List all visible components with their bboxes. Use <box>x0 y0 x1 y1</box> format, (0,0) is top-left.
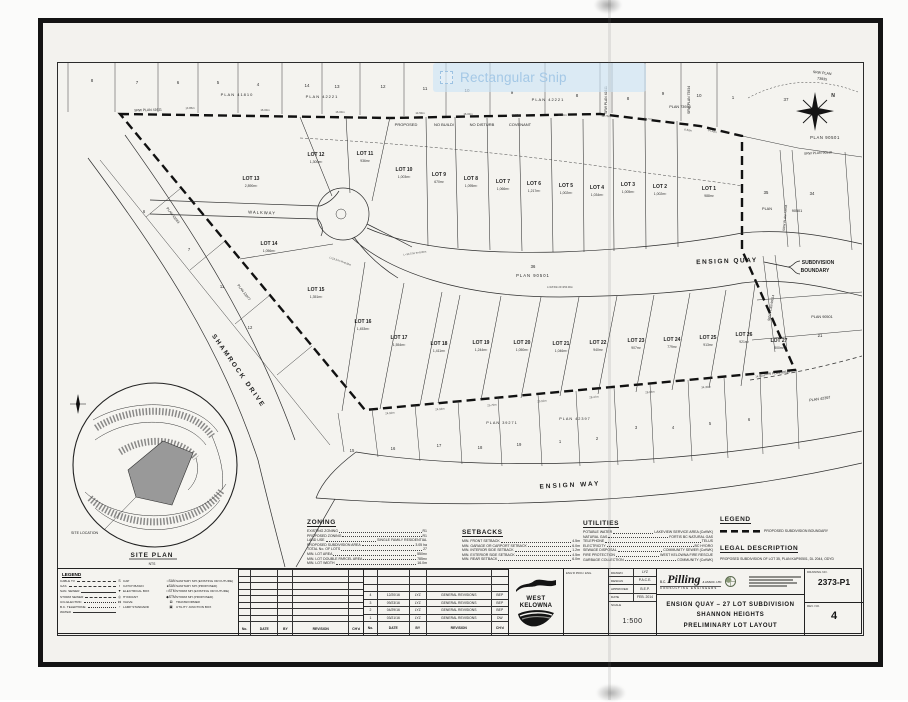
boundary-callout-leader <box>764 261 800 274</box>
plan-label: NO BUILD/ <box>434 122 455 127</box>
plan-label: LOT 12 <box>308 152 325 158</box>
legend-box-title: LEGEND <box>62 572 236 577</box>
plan-label: 13.77m <box>643 117 653 122</box>
plan-label: 10 <box>696 93 702 98</box>
plan-label: 1,095m² <box>465 184 478 188</box>
plan-label: 1,244m² <box>475 348 488 352</box>
plan-label: 16 <box>391 446 396 451</box>
plan-label: WALKWAY <box>248 210 276 216</box>
plan-label: 5 <box>217 80 220 85</box>
revision-row: 309/23/16LYZGENERAL REVISIONSBEP <box>364 599 508 606</box>
plan-label: LOT 8 <box>464 176 478 182</box>
plan-label: 8 <box>576 93 579 98</box>
plan-label: 37 <box>783 97 789 102</box>
plan-label: 24.50m <box>385 411 395 416</box>
setbacks-block: SETBACKS MIN. FRONT SETBACK4.5mMIN. GARA… <box>462 521 580 562</box>
plan-label: 17 <box>437 443 442 448</box>
firm-logo-row: B.C. Pilling & ASSOC. LTD CONSULTING ENG… <box>657 569 804 595</box>
utilities-item: GARBAGE COLLECTIONCOMMUNITY (CofWK) <box>583 558 713 563</box>
revision-row <box>364 576 508 583</box>
plan-label: LOT 26 <box>736 332 753 338</box>
scale-label: SCALE <box>609 602 633 609</box>
setbacks-title: SETBACKS <box>462 529 503 537</box>
plan-label: SUBDIVISION <box>802 260 835 266</box>
legend-linetype-row: WATER <box>60 610 116 615</box>
utilities-items: POTABLE WATERLAKEVIEW SERVICE AREA (CofW… <box>583 530 713 562</box>
plan-label: LOT 9 <box>432 172 446 178</box>
plan-label: 14 <box>304 83 310 88</box>
plan-label: 1,056m² <box>263 249 276 253</box>
firm-suffix: & ASSOC. LTD <box>703 581 722 584</box>
plan-label: 14.85m <box>185 106 195 110</box>
plan-label: 11 <box>220 284 225 289</box>
plan-label: LOT 17 <box>391 335 408 341</box>
setbacks-items: MIN. FRONT SETBACK4.5mMIN. GARAGE OR CAR… <box>462 539 580 562</box>
drawn-label: DRAWN <box>609 569 633 576</box>
zoning-block: ZONING EXISTING ZONINGR1PROPOSED ZONINGR… <box>307 511 427 566</box>
plan-label: 1,046m² <box>555 349 568 353</box>
plan-label: 921m² <box>739 340 749 344</box>
plan-label: 1,411m² <box>433 349 446 353</box>
plan-label: PLAN 90501 <box>516 273 550 278</box>
plan-label: 16.00m <box>335 110 345 114</box>
plan-label: LOT 6 <box>527 181 541 187</box>
plan-label: LOT 24 <box>664 337 681 343</box>
boundary-dash-sample <box>720 530 760 533</box>
plan-label: 800m² <box>774 346 784 350</box>
plan-label: PLAN 43583 <box>165 207 180 225</box>
drawing-no-label: DRAWING NO. <box>807 570 828 574</box>
plan-label: LOT 3 <box>621 182 635 188</box>
cul-de-sac <box>317 188 369 240</box>
rectangular-snip-icon <box>440 71 453 84</box>
plan-label: PLAN 41810 <box>221 92 254 97</box>
plan-label: LOT 18 <box>431 341 448 347</box>
plan-label: 1,050m² <box>516 348 529 352</box>
wk-word-west: WEST <box>526 596 545 602</box>
plan-label: 1,217m² <box>528 189 541 193</box>
plan-label: PLAN 42221 <box>306 94 339 99</box>
drawing-title-line2: SHANNON HEIGHTS <box>697 612 765 618</box>
revision-table-right: 412/20/16LYZGENERAL REVISIONSBEP309/23/1… <box>363 569 508 635</box>
plan-label: BOUNDARY <box>801 268 830 274</box>
boundary-dash-label: PROPOSED SUBDIVISION BOUNDARY <box>764 529 828 533</box>
utilities-title: UTILITIES <box>583 520 619 528</box>
plan-label: 6.52m <box>684 127 693 132</box>
utilities-block: UTILITIES POTABLE WATERLAKEVIEW SERVICE … <box>583 512 713 562</box>
plan-label: 1,066m² <box>497 187 510 191</box>
plan-label: 1,002m² <box>560 191 573 195</box>
plan-label: 25.70m <box>487 403 497 408</box>
setbacks-item: MIN. REAR SETBACK6.0m <box>462 557 580 562</box>
plan-label: LOT 22 <box>590 340 607 346</box>
plan-label: 34.30m <box>701 385 711 390</box>
plan-label: 2,890m² <box>245 184 258 188</box>
approved-value: B.E.P. <box>633 585 656 592</box>
scanned-plan-sheet: 876541413121110988910137PLAN 41810PLAN 4… <box>0 0 908 700</box>
plan-label: 73935 <box>817 76 827 81</box>
firm-subtitle: CONSULTING ENGINEERS <box>660 586 721 590</box>
plan-label: 6 <box>177 80 180 85</box>
north-arrow <box>796 92 834 131</box>
date-value: FEB. 2014 <box>633 594 656 601</box>
plan-label: 28.93m <box>645 390 655 395</box>
legend-boundary-row: PROPOSED SUBDIVISION BOUNDARY <box>720 529 856 533</box>
plan-label: 779m² <box>667 345 677 349</box>
plan-label: 14.20m <box>511 113 521 117</box>
plan-label: 12 <box>380 84 386 89</box>
drawing-title-line3: PRELIMINARY LOT LAYOUT <box>684 623 778 629</box>
plan-label: PLAN <box>762 207 772 211</box>
plan-label: PLAN 13977 <box>236 284 251 302</box>
plan-label: 1,453m² <box>357 327 370 331</box>
plan-label: 34 <box>810 191 815 196</box>
plan-label: 1 <box>732 95 735 100</box>
rev-no-value: 4 <box>805 610 863 622</box>
plan-label: 14.35m <box>707 128 718 134</box>
zoning-item: MIN. LOT WIDTH16.0m <box>307 561 427 566</box>
legal-description-text: PROPOSED SUBDIVISION OF LOT 35, PLAN KAP… <box>720 557 856 561</box>
plan-label: 12 <box>248 325 253 330</box>
plan-label: 936m² <box>360 159 370 163</box>
drawing-info-cell: DRAWNLYZ DESIGNP.A.C.E. APPROVEDB.E.P. D… <box>608 569 656 635</box>
legend-symbol-row: ♀LAMP STANDARD <box>116 605 166 610</box>
drawn-value: LYZ <box>633 569 656 576</box>
symbol-legend-box: LEGEND CABLE TVGASSAN. SEWERSTORM SEWERU… <box>58 569 238 635</box>
revision-row <box>364 584 508 591</box>
plan-label: SRW PLAN 90515 <box>764 370 791 377</box>
revision-row: 204/29/16LYZGENERAL REVISIONSBEP <box>364 606 508 613</box>
date-label: DATE <box>609 594 633 601</box>
wk-word-kelowna: KELOWNA <box>520 603 553 609</box>
design-value: P.A.C.E. <box>633 577 656 584</box>
plan-label: 1,554m² <box>393 343 406 347</box>
rectangular-snip-overlay: Rectangular Snip <box>433 63 646 92</box>
plan-label: 6 <box>748 417 751 422</box>
plan-label: LOT 21 <box>553 341 570 347</box>
legend-right-block: LEGEND PROPOSED SUBDIVISION BOUNDARY LEG… <box>720 508 856 561</box>
plan-label: SRW PLAN 73934 <box>687 86 691 114</box>
plan-label: LOT 19 <box>473 340 490 346</box>
plan-label: LOT 16 <box>355 319 372 325</box>
plan-label: 9 <box>662 91 665 96</box>
plan-label: 24.56m <box>435 407 445 412</box>
plan-label: LOT 15 <box>308 287 325 293</box>
revision-header-row: No.DATEBYREVISIONCH'd <box>239 621 363 635</box>
plan-label: SHAMROCK DRIVE <box>210 333 266 409</box>
west-kelowna-logo-cell: WEST KELOWNA <box>508 569 563 635</box>
plan-label: 16.00m <box>463 112 473 116</box>
plan-label: PLAN 42221 <box>532 97 565 102</box>
plan-label: 940m² <box>593 348 603 352</box>
plan-label: LOT 25 <box>700 335 717 341</box>
plan-label: 36 <box>531 264 536 269</box>
plan-label: SRW PLAN 73934 <box>782 204 788 231</box>
plan-label: 2 <box>596 436 599 441</box>
scale-value: 1:500 <box>609 609 656 635</box>
drawing-number-cell: DRAWING NO. 2373-P1 REV. NO. 4 <box>804 569 863 635</box>
lower-lot-lines <box>240 244 755 411</box>
plan-label: LOT 11 <box>357 151 374 157</box>
plan-label: SRW PLAN 90510 <box>804 150 832 155</box>
zoning-title: ZONING <box>307 519 336 527</box>
right-parcel-lines <box>742 82 862 380</box>
drawing-title-line1: ENSIGN QUAY – 27 LOT SUBDIVISION <box>666 602 794 608</box>
design-label: DESIGN <box>609 577 633 584</box>
stamp-note: ENG'R PROJ. ENG. <box>566 571 606 575</box>
plan-label: 13 <box>334 84 340 89</box>
plan-label: PLAN 42397 <box>559 417 591 421</box>
plan-label: N <box>831 93 835 99</box>
west-kelowna-logo: WEST KELOWNA <box>510 572 562 632</box>
plan-label: 5 <box>709 421 712 426</box>
plan-label: 1,002m² <box>654 192 667 196</box>
plan-label: LOT 1 <box>702 186 716 192</box>
plan-label: LOT 23 <box>628 338 645 344</box>
rectangular-snip-label: Rectangular Snip <box>460 70 567 85</box>
scan-smudge-top <box>594 0 622 14</box>
plan-label: 16.00m <box>260 108 270 112</box>
firm-and-title-cell: B.C. Pilling & ASSOC. LTD CONSULTING ENG… <box>656 569 804 635</box>
plan-label: L=18.50m R=250.00m <box>547 285 573 289</box>
plan-label: NO DISTURB <box>470 122 495 127</box>
plan-label: PLAN 42397 <box>809 396 831 403</box>
firm-address-lines <box>749 576 801 586</box>
plan-label: LOT 27 <box>771 338 788 344</box>
plan-label: 19 <box>517 442 522 447</box>
legend-manhole-row: ▣UTILITY JUNCTION BOX <box>166 605 234 610</box>
plan-label: 1,003m² <box>398 175 411 179</box>
plan-label: PLAN 39271 <box>486 421 518 425</box>
plan-label: PLAN 90501 <box>810 135 840 140</box>
revision-table-left: No.DATEBYREVISIONCH'd <box>238 569 363 635</box>
plan-label: LOT 7 <box>496 179 510 185</box>
plan-label: 913m² <box>703 343 713 347</box>
plan-label: 21 <box>818 333 823 338</box>
firm-prefix: B.C. <box>660 581 666 584</box>
plan-label: 11 <box>423 86 428 91</box>
plan-label: 6 <box>143 209 146 214</box>
plan-label: LOT 5 <box>559 183 573 189</box>
subdivision-boundary-line <box>120 114 795 410</box>
globe-icon <box>725 576 736 587</box>
plan-label: LOT 14 <box>261 241 278 247</box>
paper-fold-line <box>608 0 611 700</box>
plan-label: 1,300m² <box>310 160 323 164</box>
plan-label: 14.50m <box>415 111 425 115</box>
plan-label: 28.47m <box>589 395 599 400</box>
plan-label: L=10.37m R=8.00m <box>403 249 426 256</box>
plan-label: SITE LOCATION <box>71 531 98 535</box>
plan-label: 1,005m² <box>622 190 635 194</box>
plan-label: 15 <box>350 448 355 453</box>
plan-label: 4 <box>672 425 675 430</box>
drawing-titles: ENSIGN QUAY – 27 LOT SUBDIVISION SHANNON… <box>657 595 804 635</box>
plan-label: LOT 4 <box>590 185 604 191</box>
title-block-strip: LEGEND CABLE TVGASSAN. SEWERSTORM SEWERU… <box>57 568 862 634</box>
plan-label: SITE PLAN <box>131 552 174 559</box>
legend-linetypes: CABLE TVGASSAN. SEWERSTORM SEWERU/G ELEC… <box>60 579 116 615</box>
plan-label: 7 <box>188 247 191 252</box>
plan-label: 4 <box>257 82 260 87</box>
plan-label: PLAN 90501 <box>811 315 833 319</box>
revision-header-row: No.DATEBYREVISIONCH'd <box>364 621 508 635</box>
plan-label: SRW PLAN <box>813 70 832 76</box>
plan-label: LOT 20 <box>514 340 531 346</box>
plan-label: 1,351m² <box>310 295 323 299</box>
subdivision-plan: 876541413121110988910137PLAN 41810PLAN 4… <box>57 62 862 568</box>
legend-symbols: SCAP▪CATCH BASIN▼ELECTRICAL BOX◎HYDRANT⋈… <box>116 579 166 615</box>
plan-label: ENSIGN QUAY <box>696 257 758 266</box>
plan-label: L=12.57m R=8.00m <box>329 255 352 267</box>
plan-label: LOT 13 <box>243 176 260 182</box>
site-plan-north-arrow <box>70 394 86 414</box>
plan-label: 7 <box>136 80 139 85</box>
engineer-stamp-cell: ENG'R PROJ. ENG. <box>563 569 608 635</box>
plan-label: LOT 10 <box>396 167 413 173</box>
plan-label: 907m² <box>631 346 641 350</box>
plan-label: 8 <box>91 78 94 83</box>
approved-label: APPROVED <box>609 585 633 592</box>
legal-description-title: LEGAL DESCRIPTION <box>720 545 798 553</box>
revision-row <box>364 569 508 576</box>
legend-manholes: ○SANSANITARY MH (EXISTING OR FUTURE)●SAN… <box>166 579 234 615</box>
plan-label: 1,034m² <box>591 193 604 197</box>
plan-label: PROPOSED <box>395 122 418 127</box>
plan-label: 23.55m <box>537 399 547 404</box>
plan-label: 670m² <box>434 180 444 184</box>
legend-right-title: LEGEND <box>720 516 751 524</box>
plan-label: 3 <box>635 425 638 430</box>
plan-label: 90501 <box>792 209 803 213</box>
revision-row: 412/20/16LYZGENERAL REVISIONSBEP <box>364 591 508 598</box>
plan-label: LOT 2 <box>653 184 667 190</box>
revision-row: 103/21/16LYZGENERAL REVISIONSDW <box>364 614 508 621</box>
firm-name: Pilling <box>667 573 700 585</box>
plan-label: COVENANT <box>509 122 532 127</box>
plan-label: 1 <box>559 439 562 444</box>
plan-label: 35 <box>764 190 769 195</box>
plan-label: 14.00m <box>557 113 567 117</box>
plan-label: 8 <box>627 96 630 101</box>
plan-label: ENSIGN WAY <box>539 480 600 490</box>
plan-label: NTS <box>149 562 157 566</box>
rev-no-label: REV. NO. <box>807 604 820 608</box>
scan-smudge-bottom <box>596 684 626 702</box>
drawing-no-value: 2373-P1 <box>805 577 863 587</box>
plan-label: 18 <box>478 445 483 450</box>
zoning-items: EXISTING ZONINGR1PROPOSED ZONINGR1LAND U… <box>307 529 427 566</box>
plan-label: 988m² <box>704 194 714 198</box>
